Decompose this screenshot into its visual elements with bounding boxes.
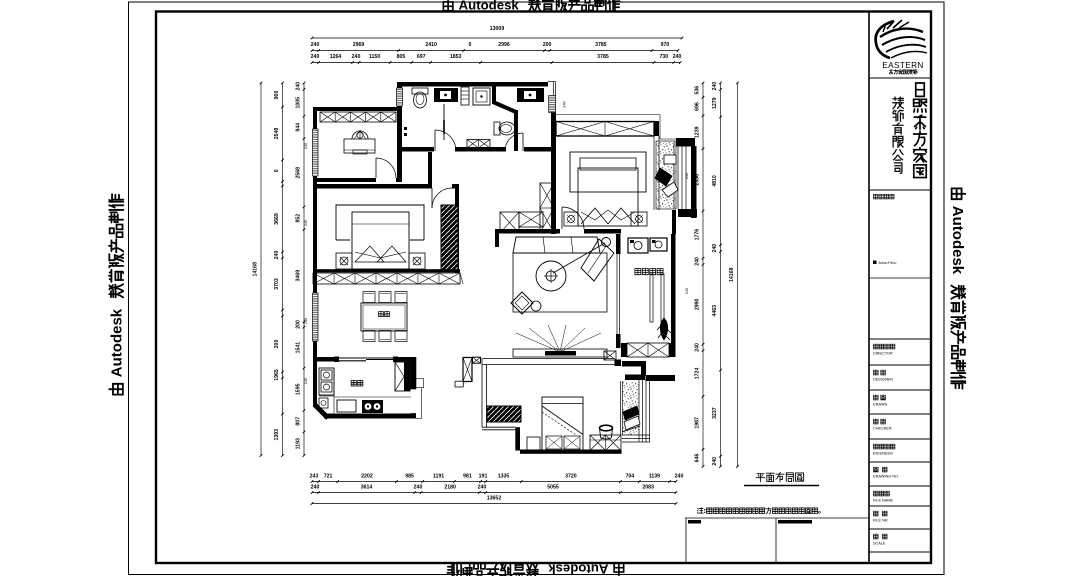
svg-text:981: 981 bbox=[463, 473, 472, 479]
svg-text:1139: 1139 bbox=[649, 473, 660, 479]
svg-text:0: 0 bbox=[274, 169, 280, 172]
svg-text:Autodesk: Autodesk bbox=[109, 308, 126, 377]
svg-text:240: 240 bbox=[414, 485, 423, 491]
svg-text:1393: 1393 bbox=[274, 429, 280, 441]
svg-text:4810: 4810 bbox=[712, 175, 718, 187]
svg-text:240: 240 bbox=[478, 485, 487, 491]
svg-text:FILE NAME: FILE NAME bbox=[873, 499, 894, 503]
svg-text:3669: 3669 bbox=[274, 213, 280, 225]
svg-text:2180: 2180 bbox=[444, 485, 456, 491]
svg-text:1987: 1987 bbox=[695, 417, 701, 429]
svg-text:14168: 14168 bbox=[253, 262, 259, 277]
svg-text:Autodesk: Autodesk bbox=[548, 562, 609, 576]
svg-text:200: 200 bbox=[543, 42, 552, 48]
svg-text:240: 240 bbox=[296, 82, 302, 91]
svg-text:1279: 1279 bbox=[712, 97, 718, 109]
svg-text:Area=Fehu: Area=Fehu bbox=[879, 261, 897, 265]
svg-text:852: 852 bbox=[296, 214, 302, 223]
svg-text:240: 240 bbox=[311, 485, 320, 491]
svg-text:EASTERN: EASTERN bbox=[882, 61, 923, 70]
svg-text:1853: 1853 bbox=[450, 54, 462, 60]
svg-text:240: 240 bbox=[712, 82, 718, 91]
svg-text:2202: 2202 bbox=[361, 473, 373, 479]
svg-text:240: 240 bbox=[304, 220, 308, 226]
svg-text:900: 900 bbox=[274, 91, 280, 100]
svg-text:240: 240 bbox=[712, 244, 718, 253]
svg-text:243: 243 bbox=[310, 473, 319, 479]
svg-text:240: 240 bbox=[695, 257, 701, 266]
svg-text:FILE NR.: FILE NR. bbox=[873, 519, 889, 523]
svg-text:730: 730 bbox=[660, 54, 669, 60]
svg-text:1193: 1193 bbox=[296, 438, 302, 449]
svg-text:240: 240 bbox=[304, 318, 308, 324]
svg-text:3785: 3785 bbox=[595, 42, 607, 48]
svg-text:3720: 3720 bbox=[565, 473, 577, 479]
svg-text:Autodesk: Autodesk bbox=[459, 0, 520, 13]
svg-text:240: 240 bbox=[311, 54, 320, 60]
svg-text:3469: 3469 bbox=[296, 270, 302, 282]
svg-text:704: 704 bbox=[625, 473, 634, 479]
svg-text:1191: 1191 bbox=[433, 473, 444, 479]
svg-text:240: 240 bbox=[673, 54, 682, 60]
svg-text:536: 536 bbox=[695, 86, 701, 95]
svg-text:3703: 3703 bbox=[274, 278, 280, 290]
svg-text:2969: 2969 bbox=[353, 42, 365, 48]
svg-text:240: 240 bbox=[311, 42, 320, 48]
svg-text:CHECKER: CHECKER bbox=[873, 427, 892, 431]
svg-text:2568: 2568 bbox=[296, 167, 302, 179]
svg-text:2083: 2083 bbox=[642, 485, 654, 491]
svg-text:1005: 1005 bbox=[296, 97, 302, 109]
svg-text:240: 240 bbox=[274, 251, 280, 260]
svg-text:DRAWING NO.: DRAWING NO. bbox=[873, 475, 899, 479]
svg-text:5055: 5055 bbox=[547, 485, 559, 491]
svg-text:191: 191 bbox=[479, 473, 488, 479]
svg-text:200: 200 bbox=[274, 340, 280, 349]
svg-text:2410: 2410 bbox=[425, 42, 437, 48]
svg-text:240: 240 bbox=[352, 54, 361, 60]
svg-text:844: 844 bbox=[296, 123, 302, 132]
svg-text:970: 970 bbox=[661, 42, 670, 48]
svg-text:13009: 13009 bbox=[490, 26, 505, 32]
svg-text:2548: 2548 bbox=[274, 128, 280, 140]
svg-text:13652: 13652 bbox=[487, 496, 502, 502]
svg-text:805: 805 bbox=[397, 54, 406, 60]
svg-text:DIRECTOR: DIRECTOR bbox=[873, 352, 893, 356]
svg-text:240: 240 bbox=[685, 288, 689, 294]
svg-text:200: 200 bbox=[296, 320, 302, 329]
svg-text:2990: 2990 bbox=[695, 299, 701, 311]
svg-text:1541: 1541 bbox=[296, 342, 302, 354]
svg-text:985: 985 bbox=[405, 473, 414, 479]
svg-text:1335: 1335 bbox=[498, 473, 510, 479]
svg-text:DRAWN: DRAWN bbox=[873, 403, 887, 407]
svg-text:1965: 1965 bbox=[274, 369, 280, 381]
svg-text:DESIGNER: DESIGNER bbox=[873, 378, 893, 382]
svg-text:SCALE: SCALE bbox=[873, 542, 886, 546]
svg-text:646: 646 bbox=[695, 453, 701, 462]
svg-text:14168: 14168 bbox=[729, 267, 735, 282]
svg-text:240: 240 bbox=[695, 343, 701, 352]
svg-text:240: 240 bbox=[712, 457, 718, 466]
svg-text:1776: 1776 bbox=[695, 229, 701, 241]
svg-text:0: 0 bbox=[469, 42, 472, 48]
svg-text:1150: 1150 bbox=[369, 54, 380, 60]
svg-text:2996: 2996 bbox=[498, 42, 510, 48]
svg-text:240: 240 bbox=[304, 143, 308, 149]
svg-text:697: 697 bbox=[417, 54, 426, 60]
svg-text:1264: 1264 bbox=[330, 54, 342, 60]
svg-text:3785: 3785 bbox=[597, 54, 609, 60]
svg-text:240: 240 bbox=[304, 378, 308, 384]
svg-text:721: 721 bbox=[324, 473, 333, 479]
svg-text:696: 696 bbox=[695, 102, 701, 111]
svg-text:240: 240 bbox=[675, 473, 684, 479]
svg-text:ENGINEER: ENGINEER bbox=[873, 452, 893, 456]
svg-text:3614: 3614 bbox=[361, 485, 373, 491]
svg-text:807: 807 bbox=[296, 417, 302, 426]
svg-text:1239: 1239 bbox=[695, 126, 701, 138]
svg-text:240: 240 bbox=[685, 173, 689, 179]
svg-text:1724: 1724 bbox=[695, 368, 701, 380]
svg-text:4463: 4463 bbox=[712, 305, 718, 317]
svg-text:Autodesk: Autodesk bbox=[949, 206, 966, 275]
svg-text:3237: 3237 bbox=[712, 407, 718, 419]
svg-text:1595: 1595 bbox=[296, 383, 302, 395]
svg-text:240: 240 bbox=[563, 101, 567, 107]
